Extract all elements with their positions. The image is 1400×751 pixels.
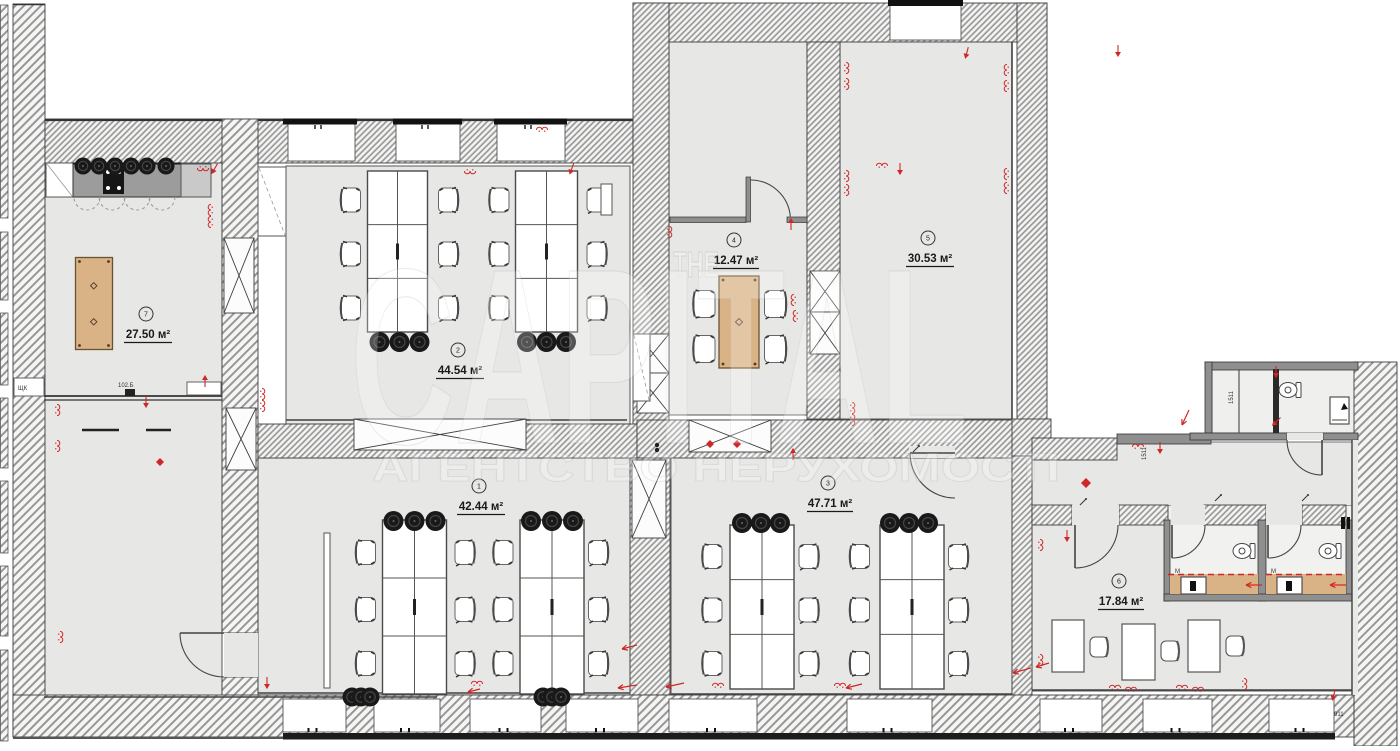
svg-text:7: 7 (144, 312, 148, 319)
svg-text:17.84 м²: 17.84 м² (1099, 596, 1143, 608)
svg-text:ЩК: ЩК (18, 386, 28, 392)
svg-text:911: 911 (1334, 712, 1344, 718)
svg-text:6: 6 (1117, 579, 1121, 586)
svg-text:47.71 м²: 47.71 м² (808, 498, 852, 510)
svg-text:1511: 1511 (1142, 446, 1148, 460)
svg-text:102.Б: 102.Б (118, 383, 134, 389)
svg-text:АГЕНТСТВО НЕРУХОМОСТІ: АГЕНТСТВО НЕРУХОМОСТІ (372, 446, 1060, 490)
svg-text:27.50 м²: 27.50 м² (126, 329, 170, 341)
svg-text:1511: 1511 (1229, 390, 1235, 404)
svg-text:42.44 м²: 42.44 м² (459, 501, 503, 513)
